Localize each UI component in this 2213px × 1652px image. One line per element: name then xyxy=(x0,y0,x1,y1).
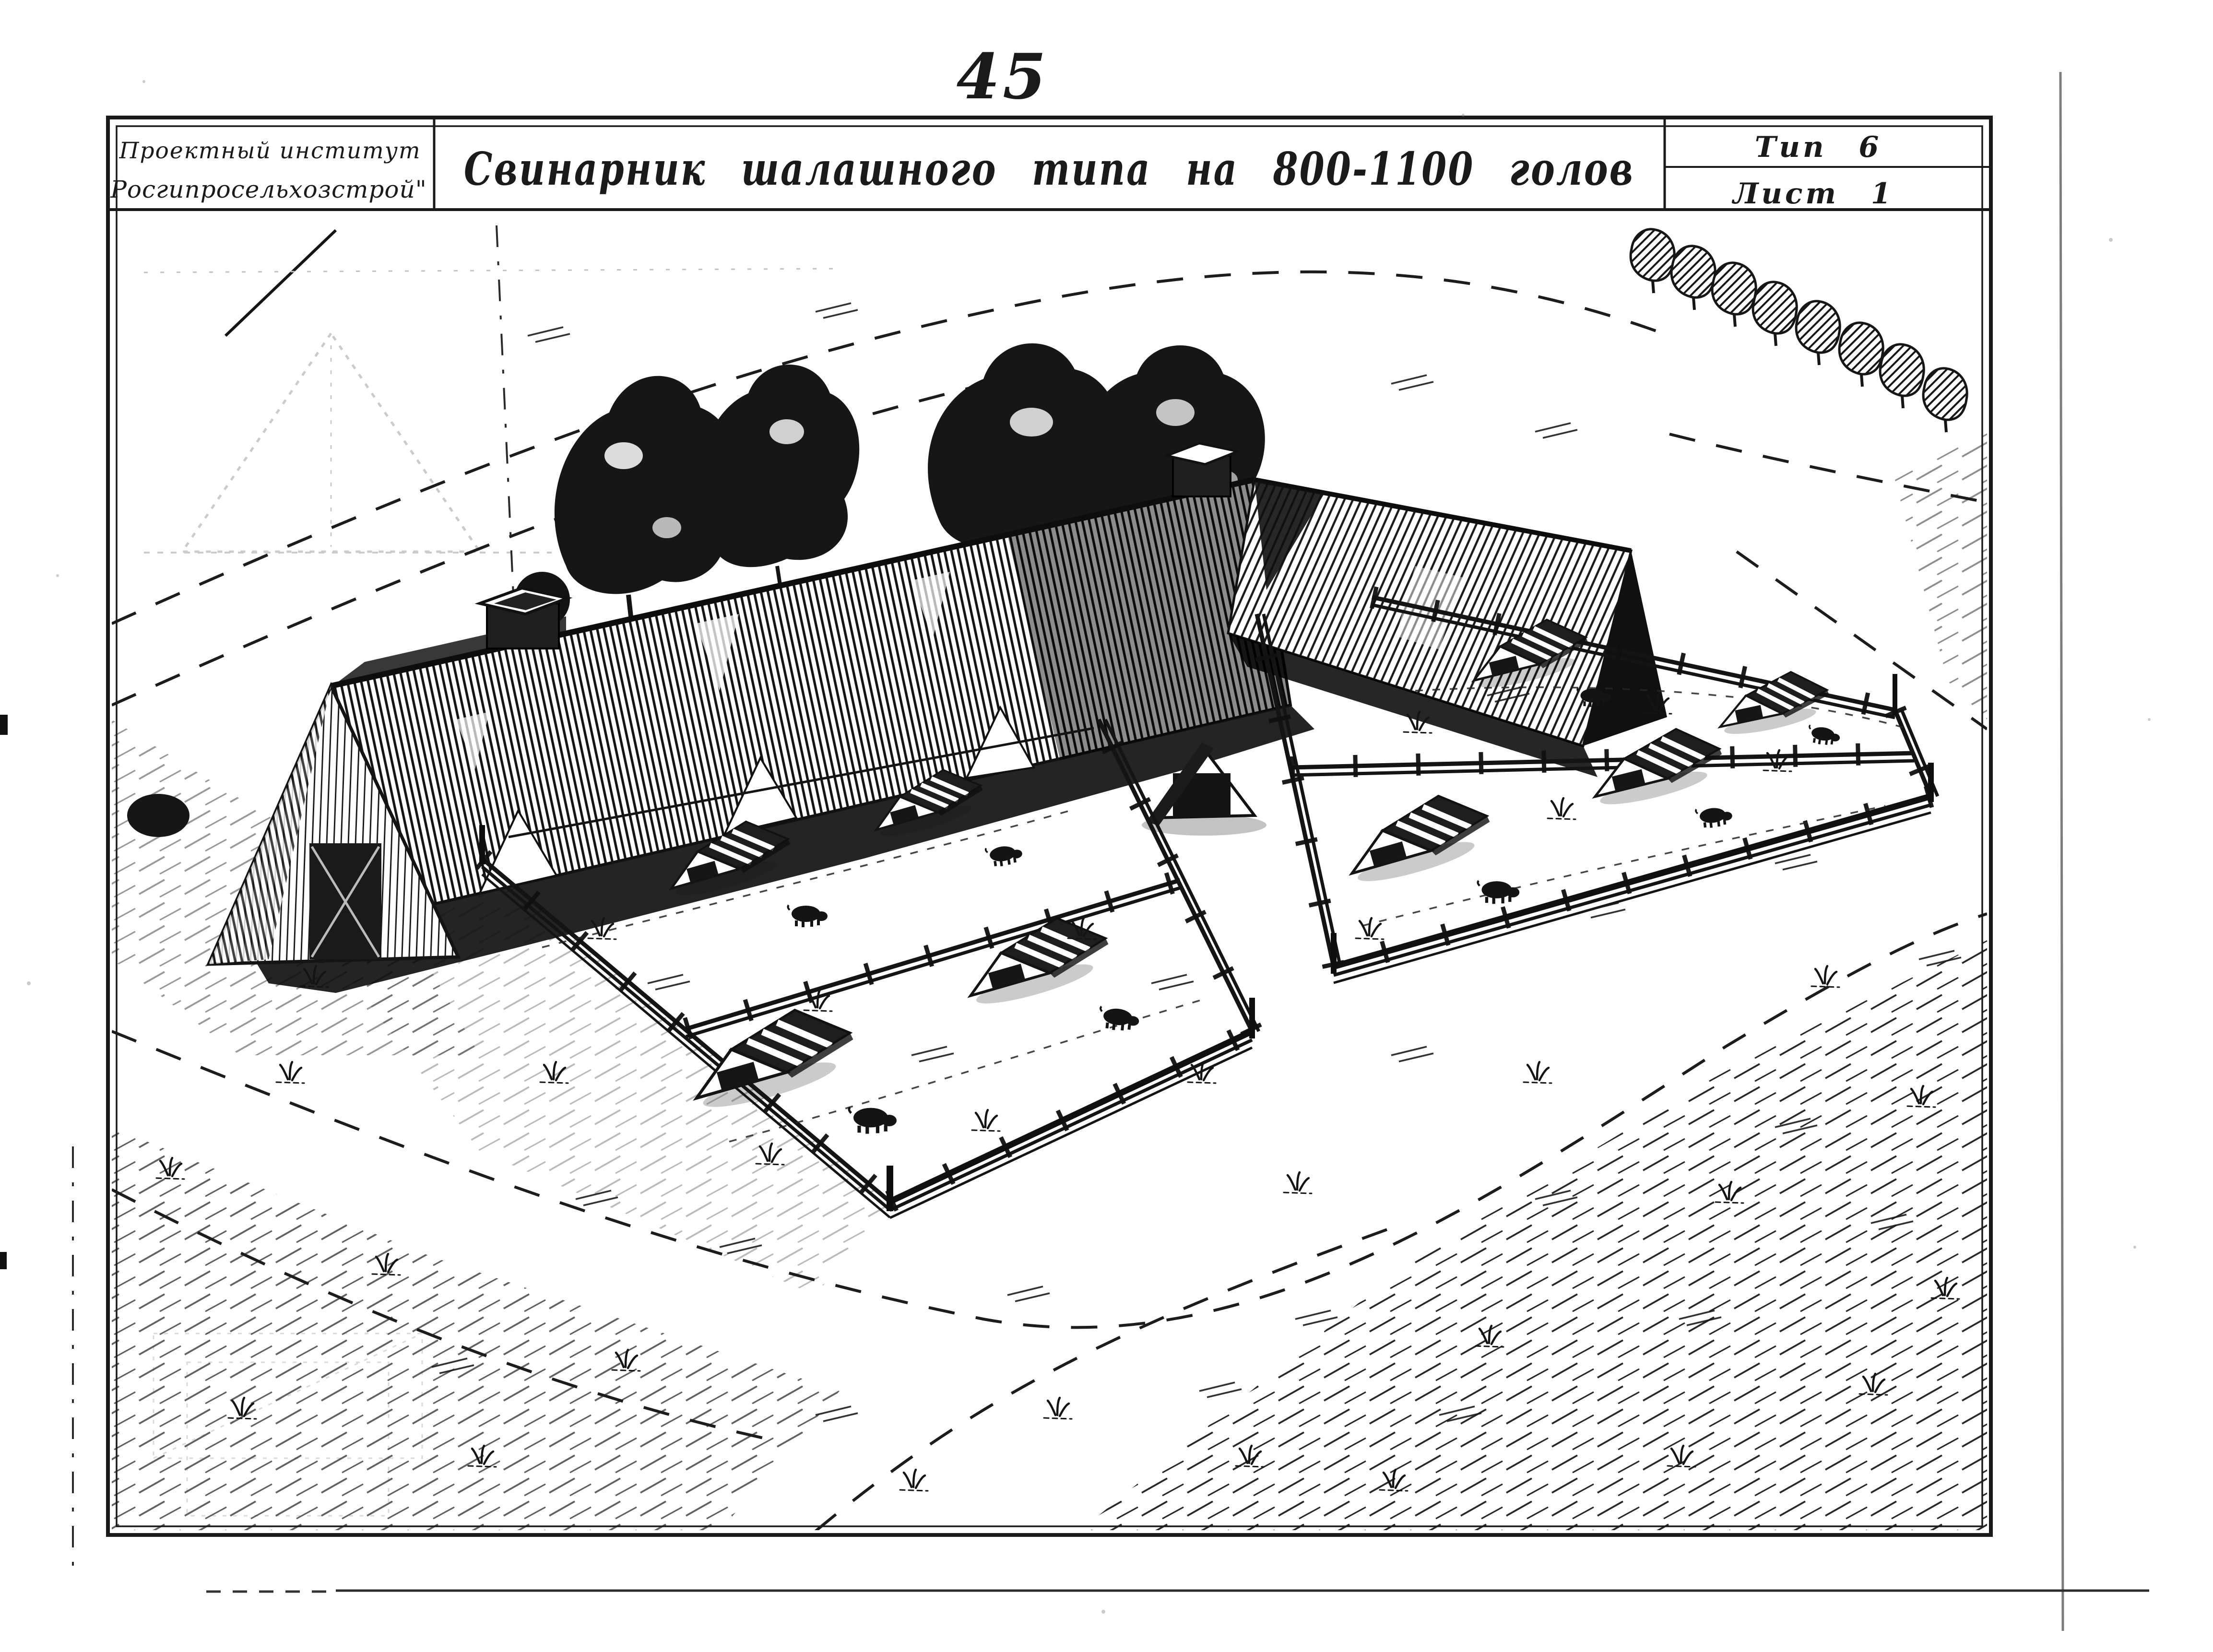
scanned-sheet: 45 xyxy=(0,0,2213,1652)
drawing-sheet-45: 45 xyxy=(0,0,2213,1652)
drawing-title: Свинарник шалашного типа на 800-1100 гол… xyxy=(464,142,1634,196)
type-label: Тип 6 xyxy=(1755,130,1882,164)
page-number: 45 xyxy=(957,40,1049,113)
sheet-label: Лист 1 xyxy=(1731,177,1893,211)
institute-line-1: Проектный институт xyxy=(118,138,421,164)
institute-line-2: Росгипросельхозстрой" xyxy=(110,176,426,203)
